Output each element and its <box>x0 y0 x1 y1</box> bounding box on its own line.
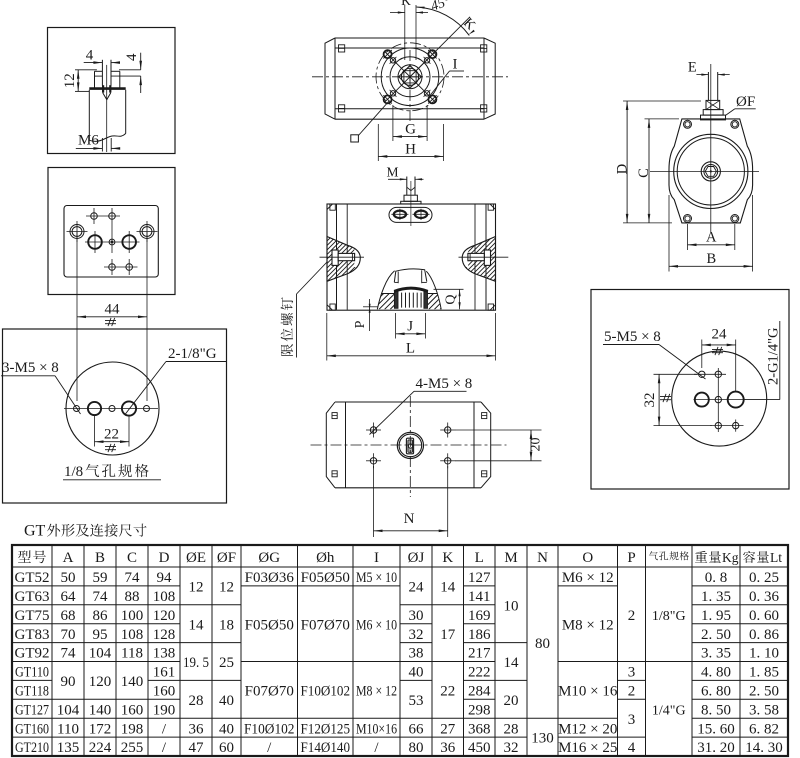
svg-text:N: N <box>537 550 548 566</box>
svg-text:66: 66 <box>409 721 425 737</box>
svg-text:P: P <box>627 550 635 566</box>
svg-text:C: C <box>636 168 652 178</box>
svg-text:M10 × 16: M10 × 16 <box>558 683 618 699</box>
svg-text:88: 88 <box>125 589 140 605</box>
svg-text:K: K <box>460 16 478 34</box>
svg-text:59: 59 <box>93 570 108 586</box>
svg-text:298: 298 <box>468 702 491 718</box>
svg-text:108: 108 <box>121 627 144 643</box>
svg-text:M5 × 10: M5 × 10 <box>356 570 397 586</box>
svg-text:28: 28 <box>189 693 204 709</box>
svg-text:24: 24 <box>409 580 425 596</box>
svg-text:0. 8: 0. 8 <box>705 570 728 586</box>
svg-text:28: 28 <box>504 721 519 737</box>
svg-text:F03Ø36: F03Ø36 <box>245 570 295 586</box>
svg-text:138: 138 <box>153 646 176 662</box>
svg-text:4: 4 <box>124 53 140 61</box>
svg-text:M: M <box>386 165 398 180</box>
svg-text:1/8"G: 1/8"G <box>652 609 686 624</box>
svg-text:M6 × 10: M6 × 10 <box>356 617 397 633</box>
svg-text:E: E <box>688 60 697 76</box>
svg-text:127: 127 <box>468 570 491 586</box>
svg-text:14: 14 <box>504 655 520 671</box>
svg-text:30: 30 <box>409 608 424 624</box>
svg-text:161: 161 <box>153 665 176 681</box>
svg-text:2-1/8"G: 2-1/8"G <box>168 346 217 362</box>
svg-text:160: 160 <box>121 702 144 718</box>
svg-text:4: 4 <box>628 740 636 756</box>
svg-text:118: 118 <box>121 646 143 662</box>
svg-text:74: 74 <box>61 646 77 662</box>
svg-text:/: / <box>267 740 272 756</box>
svg-text:F05Ø50: F05Ø50 <box>245 617 294 633</box>
svg-text:217: 217 <box>468 646 491 662</box>
svg-text:3: 3 <box>628 712 636 728</box>
svg-text:198: 198 <box>121 721 144 737</box>
svg-text:104: 104 <box>57 702 80 718</box>
svg-text:B: B <box>95 550 105 566</box>
svg-text:160: 160 <box>153 683 176 699</box>
svg-text:GT52: GT52 <box>15 570 50 586</box>
svg-text:GT110: GT110 <box>15 665 49 681</box>
svg-text:80: 80 <box>409 740 424 756</box>
svg-text:224: 224 <box>89 740 112 756</box>
svg-text:25: 25 <box>219 655 234 671</box>
svg-text:2: 2 <box>628 608 636 624</box>
svg-text:GT: GT <box>24 523 46 540</box>
svg-text:/: / <box>162 740 167 756</box>
svg-text:GT210: GT210 <box>15 740 49 756</box>
svg-text:F07Ø70: F07Ø70 <box>301 617 350 633</box>
svg-text:D: D <box>159 550 170 566</box>
svg-text:F10Ø102: F10Ø102 <box>244 721 295 737</box>
svg-text:186: 186 <box>468 627 491 643</box>
svg-text:F14Ø140: F14Ø140 <box>301 740 351 756</box>
svg-text:40: 40 <box>409 665 424 681</box>
svg-text:M6 × 12: M6 × 12 <box>562 570 614 586</box>
svg-text:ØF: ØF <box>217 550 236 566</box>
svg-text:90: 90 <box>61 674 76 690</box>
svg-text:12: 12 <box>62 73 78 88</box>
svg-text:1/4"G: 1/4"G <box>652 703 686 718</box>
svg-text:47: 47 <box>189 740 205 756</box>
svg-text:G: G <box>405 122 416 138</box>
svg-text:2-G1/4"G: 2-G1/4"G <box>766 327 782 385</box>
svg-text:GT160: GT160 <box>15 721 49 737</box>
svg-text:L: L <box>475 550 484 566</box>
svg-text:169: 169 <box>468 608 491 624</box>
svg-text:GT83: GT83 <box>15 627 50 643</box>
svg-text:70: 70 <box>61 627 76 643</box>
svg-text:0. 25: 0. 25 <box>749 570 779 586</box>
svg-text:40: 40 <box>219 721 234 737</box>
svg-text:32: 32 <box>642 393 658 408</box>
svg-text:140: 140 <box>89 702 112 718</box>
svg-text:14: 14 <box>189 617 205 633</box>
svg-text:2. 50: 2. 50 <box>701 627 731 643</box>
svg-text:GT118: GT118 <box>15 683 49 699</box>
svg-text:H: H <box>405 142 416 158</box>
svg-text:38: 38 <box>409 646 424 662</box>
svg-text:Kg: Kg <box>722 550 739 565</box>
svg-text:ØF: ØF <box>736 94 755 110</box>
svg-text:3: 3 <box>628 665 636 681</box>
svg-text:ØJ: ØJ <box>408 550 425 566</box>
svg-text:3-M5 × 8: 3-M5 × 8 <box>2 360 59 376</box>
svg-text:255: 255 <box>121 740 144 756</box>
svg-text:104: 104 <box>89 646 112 662</box>
svg-text:140: 140 <box>121 674 144 690</box>
svg-text:M8 × 12: M8 × 12 <box>356 683 397 699</box>
svg-text:14: 14 <box>440 580 456 596</box>
svg-text:F10Ø102: F10Ø102 <box>301 683 351 699</box>
svg-text:368: 368 <box>468 721 491 737</box>
svg-text:20: 20 <box>504 693 519 709</box>
svg-text:36: 36 <box>189 721 205 737</box>
svg-text:31. 20: 31. 20 <box>697 740 735 756</box>
svg-text:Lt: Lt <box>770 550 782 565</box>
svg-text:12: 12 <box>189 580 204 596</box>
svg-text:3. 58: 3. 58 <box>749 702 779 718</box>
svg-text:1. 85: 1. 85 <box>749 665 779 681</box>
svg-text:M8 × 12: M8 × 12 <box>562 617 614 633</box>
svg-text:128: 128 <box>153 627 176 643</box>
svg-text:D: D <box>615 164 631 174</box>
svg-text:190: 190 <box>153 702 176 718</box>
svg-text:0. 86: 0. 86 <box>749 627 780 643</box>
svg-text:95: 95 <box>93 627 108 643</box>
svg-text:/: / <box>162 721 167 737</box>
svg-text:B: B <box>706 251 716 267</box>
svg-text:I: I <box>453 57 458 73</box>
svg-text:27: 27 <box>440 721 456 737</box>
svg-text:1/8: 1/8 <box>64 464 83 480</box>
svg-text:120: 120 <box>153 608 176 624</box>
svg-text:L: L <box>406 341 415 357</box>
svg-text:F07Ø70: F07Ø70 <box>245 683 294 699</box>
svg-text:3. 35: 3. 35 <box>701 646 731 662</box>
svg-text:12: 12 <box>219 580 234 596</box>
svg-text:4-M5 × 8: 4-M5 × 8 <box>416 376 473 392</box>
svg-text:22: 22 <box>104 427 119 443</box>
svg-text:5-M5 × 8: 5-M5 × 8 <box>604 329 661 345</box>
svg-text:18: 18 <box>219 617 234 633</box>
svg-text:4. 80: 4. 80 <box>701 665 731 681</box>
svg-text:130: 130 <box>531 731 554 747</box>
svg-text:1. 95: 1. 95 <box>701 608 731 624</box>
svg-text:120: 120 <box>89 674 112 690</box>
svg-text:100: 100 <box>121 608 144 624</box>
svg-text:24: 24 <box>712 327 728 343</box>
svg-text:284: 284 <box>468 683 491 699</box>
svg-text:94: 94 <box>157 570 173 586</box>
svg-text:O: O <box>582 550 593 566</box>
svg-text:40: 40 <box>219 693 234 709</box>
svg-text:86: 86 <box>93 608 109 624</box>
svg-text:K: K <box>442 550 453 566</box>
svg-text:74: 74 <box>125 570 141 586</box>
svg-text:I: I <box>374 550 379 566</box>
svg-text:ØE: ØE <box>186 550 206 566</box>
svg-text:44: 44 <box>105 302 121 318</box>
svg-text:32: 32 <box>409 627 424 643</box>
svg-text:19. 5: 19. 5 <box>183 655 209 671</box>
svg-text:172: 172 <box>89 721 112 737</box>
svg-text:/: / <box>374 740 379 756</box>
svg-text:GT75: GT75 <box>15 608 50 624</box>
svg-text:74: 74 <box>93 589 109 605</box>
svg-text:450: 450 <box>468 740 491 756</box>
svg-text:GT92: GT92 <box>15 646 50 662</box>
svg-text:A: A <box>706 230 717 246</box>
svg-text:M16 × 25: M16 × 25 <box>558 740 617 756</box>
svg-text:6. 82: 6. 82 <box>749 721 779 737</box>
svg-text:N: N <box>404 511 415 527</box>
svg-text:M6: M6 <box>78 133 99 149</box>
svg-text:222: 222 <box>468 665 491 681</box>
svg-text:0. 36: 0. 36 <box>749 589 780 605</box>
svg-text:10: 10 <box>504 598 519 614</box>
svg-text:50: 50 <box>61 570 76 586</box>
svg-text:108: 108 <box>153 589 176 605</box>
svg-text:J: J <box>407 319 413 335</box>
svg-text:GT127: GT127 <box>15 702 49 718</box>
svg-text:14. 30: 14. 30 <box>745 740 783 756</box>
svg-text:80: 80 <box>535 636 550 652</box>
svg-text:M10×16: M10×16 <box>356 721 397 737</box>
svg-text:141: 141 <box>468 589 491 605</box>
svg-text:M12 × 20: M12 × 20 <box>558 721 617 737</box>
svg-text:135: 135 <box>57 740 80 756</box>
svg-text:2: 2 <box>628 683 636 699</box>
svg-text:2. 50: 2. 50 <box>749 683 779 699</box>
svg-text:22: 22 <box>440 683 455 699</box>
svg-text:K: K <box>401 0 411 8</box>
svg-text:Øh: Øh <box>316 550 335 566</box>
svg-text:32: 32 <box>504 740 519 756</box>
svg-text:8. 50: 8. 50 <box>701 702 731 718</box>
svg-text:GT63: GT63 <box>15 589 50 605</box>
svg-text:64: 64 <box>61 589 77 605</box>
svg-text:110: 110 <box>57 721 79 737</box>
svg-text:17: 17 <box>440 627 456 643</box>
svg-text:0. 60: 0. 60 <box>749 608 779 624</box>
svg-text:ØG: ØG <box>258 550 280 566</box>
svg-text:P: P <box>353 320 368 328</box>
svg-text:6. 80: 6. 80 <box>701 683 731 699</box>
svg-text:36: 36 <box>440 740 456 756</box>
svg-text:4: 4 <box>86 48 94 64</box>
svg-text:1. 10: 1. 10 <box>749 646 779 662</box>
svg-text:F05Ø50: F05Ø50 <box>301 570 350 586</box>
svg-text:1. 35: 1. 35 <box>701 589 731 605</box>
svg-text:M: M <box>504 550 517 566</box>
svg-text:A: A <box>63 550 74 566</box>
svg-text:F12Ø125: F12Ø125 <box>301 721 351 737</box>
svg-text:15. 60: 15. 60 <box>697 721 735 737</box>
svg-text:68: 68 <box>61 608 76 624</box>
svg-text:C: C <box>127 550 137 566</box>
svg-text:Q: Q <box>444 294 459 304</box>
svg-text:53: 53 <box>409 693 424 709</box>
svg-text:60: 60 <box>219 740 234 756</box>
